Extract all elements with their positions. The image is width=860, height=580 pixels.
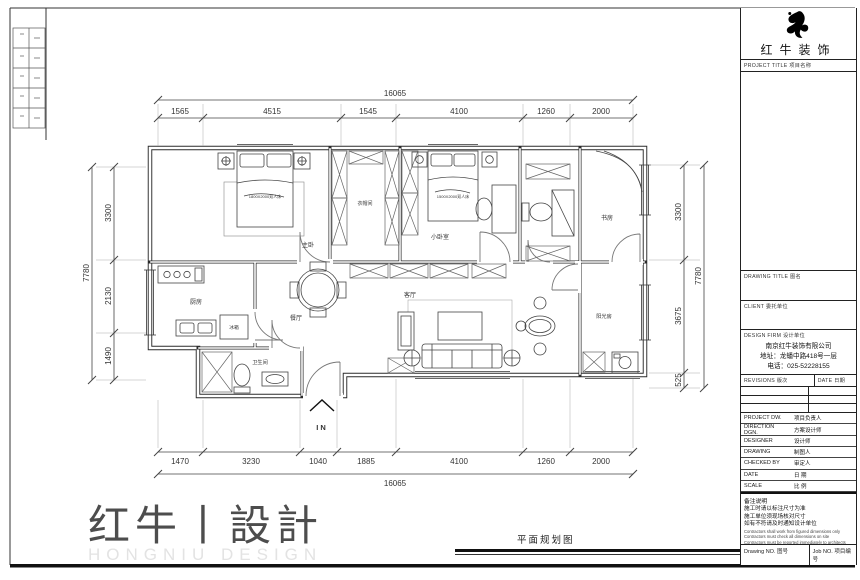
bed-label-master: 1800X2000双人床	[249, 193, 281, 199]
room-label-balcony: 阳光房	[596, 312, 612, 320]
entry-label: IN	[316, 423, 328, 432]
notes-cn-3: 如有不符请及时通知设计单位	[744, 521, 853, 529]
dim-top-4: 1260	[537, 107, 555, 116]
sheet-title-text: 平面规划图	[517, 532, 740, 546]
margin-stamp-boxes	[13, 28, 45, 128]
design-firm-label: DESIGN FIRM 设计单位	[741, 330, 856, 341]
dim-top-1: 4515	[263, 107, 281, 116]
dim-bot-2: 1040	[309, 457, 327, 466]
inforow-label: PROJECT DW.	[744, 415, 788, 421]
room-label-bath: 卫生间	[252, 358, 268, 366]
firm-brand-text: 红牛装饰	[760, 41, 836, 58]
room-label-living: 客厅	[404, 291, 416, 299]
title-block: 红牛装饰 PROJECT TITLE 项目名称 DRAWING TITLE 图名…	[740, 8, 857, 565]
project-title-space	[741, 72, 856, 272]
notes-cn-2: 施工单位须现场核对尺寸	[744, 514, 853, 522]
dim-right-total: 7780	[694, 267, 703, 285]
bath-fixtures	[234, 364, 288, 393]
entry-marker: IN	[310, 400, 334, 432]
drawing-number-row: Drawing NO. 图号 Job NO. 项目编号	[741, 545, 856, 565]
drawing-no-label: Drawing NO. 图号	[741, 545, 810, 565]
job-no-label: Job NO. 项目编号	[810, 545, 856, 565]
dim-bot-4: 4100	[450, 457, 468, 466]
footer-logo-en: HONGNIU DESIGN	[88, 545, 323, 565]
notes-block: 备注说明 施工时请以标注尺寸为准 施工单位须现场核对尺寸 如有不符请及时通知设计…	[741, 492, 856, 545]
inforow-label: SCALE	[744, 483, 788, 489]
dim-bot-5: 1260	[537, 457, 555, 466]
dim-bot-3: 1885	[357, 457, 375, 466]
study-desk	[596, 151, 642, 192]
firm-logo: 红牛装饰	[741, 8, 856, 60]
sheet-title-rule-thick	[455, 549, 740, 552]
inforow-value: 比 例	[794, 482, 807, 490]
inforow-value: 审定人	[794, 459, 811, 467]
client-label: CLIENT 委托单位	[741, 301, 856, 312]
revisions-header: REVISIONS 版次 DATE 日期	[741, 375, 856, 387]
dim-top-total: 16065	[384, 89, 407, 98]
dim-left-0: 3300	[104, 204, 113, 222]
revisions-label: REVISIONS 版次	[741, 375, 815, 386]
living-furniture	[398, 297, 555, 368]
room-label-study: 书房	[601, 214, 613, 222]
drawing-sheet: { "colors": { "line": "#2b2b2b", "dim": …	[0, 0, 860, 580]
sheet-title-rule-thin	[455, 554, 740, 555]
firm-name: 南京红牛装饰有限公司	[741, 342, 856, 352]
dining-table	[290, 262, 346, 317]
inforow-value: 方案设计师	[794, 426, 822, 434]
revision-row	[741, 404, 856, 413]
dim-right-2: 525	[674, 373, 683, 387]
room-label-master: 主卧	[302, 241, 314, 249]
dim-top-5: 2000	[592, 107, 610, 116]
inforow-label: DATE	[744, 472, 788, 478]
inforow-value: 设计师	[794, 437, 811, 445]
wc-fixtures	[522, 190, 574, 236]
sheet-title: 平面规划图	[455, 532, 740, 555]
notes-cn-1: 施工时请以标注尺寸为准	[744, 506, 853, 514]
room-label-cloak: 衣帽间	[357, 200, 372, 207]
witness-lines	[96, 104, 700, 448]
fridge-label: 冰箱	[229, 324, 239, 331]
sheet-frame	[10, 8, 855, 565]
inforow-date: DATE 日 期	[741, 470, 856, 481]
dim-bottom-total: 16065	[384, 479, 407, 488]
dim-top-0: 1565	[171, 107, 189, 116]
inforow-designer: DESIGNER 设计师	[741, 436, 856, 447]
small-bed	[412, 151, 516, 233]
drawing-title-label: DRAWING TITLE 图名	[741, 271, 856, 282]
rev-date-label: DATE 日期	[815, 375, 848, 386]
revision-row	[741, 387, 856, 396]
firm-phone: 电话：025-52228155	[741, 362, 856, 372]
dim-left-1: 2130	[104, 287, 113, 305]
dim-left-2: 1490	[104, 347, 113, 365]
dim-top-2: 1545	[359, 107, 377, 116]
footer-logo: 红牛丨設計 HONGNIU DESIGN	[88, 492, 323, 565]
inforow-value: 日 期	[794, 471, 807, 479]
footer-logo-cn: 红牛丨設計	[88, 492, 323, 553]
firm-address: 地址：龙蟠中路418号一层	[741, 352, 856, 362]
inforow-label: CHECKED BY	[744, 460, 788, 466]
dim-top-3: 4100	[450, 107, 468, 116]
room-label-kitchen: 厨房	[190, 298, 202, 306]
revision-row	[741, 396, 856, 405]
dim-left-total: 7780	[82, 264, 91, 282]
project-title-label: PROJECT TITLE 项目名称	[741, 60, 856, 71]
balcony-washer	[612, 352, 638, 373]
dimension-lines	[92, 100, 704, 474]
room-label-dining: 餐厅	[290, 314, 302, 322]
notes-title: 备注说明	[744, 496, 853, 505]
inforow-checked-by: CHECKED BY 审定人	[741, 458, 856, 469]
dim-bot-6: 2000	[592, 457, 610, 466]
inforow-value: 项目负责人	[794, 414, 822, 422]
inforow-direction-dgn: DIRECTION DGN. 方案设计师	[741, 424, 856, 436]
bull-logo-icon	[779, 10, 819, 40]
dim-right-1: 3675	[674, 307, 683, 325]
inforow-label: DIRECTION DGN.	[744, 424, 788, 436]
dim-bot-0: 1470	[171, 457, 189, 466]
inforow-label: DESIGNER	[744, 438, 788, 444]
dim-right-0: 3300	[674, 203, 683, 221]
bed-label-small: 1500X2000双人床	[437, 193, 469, 199]
room-label-small: 小卧室	[431, 233, 449, 241]
dim-bot-1: 3230	[242, 457, 260, 466]
inforow-label: DRAWING	[744, 449, 788, 455]
inforow-value: 制图人	[794, 448, 811, 456]
inforow-drawing: DRAWING 制图人	[741, 447, 856, 458]
inforow-scale: SCALE 比 例	[741, 481, 856, 492]
